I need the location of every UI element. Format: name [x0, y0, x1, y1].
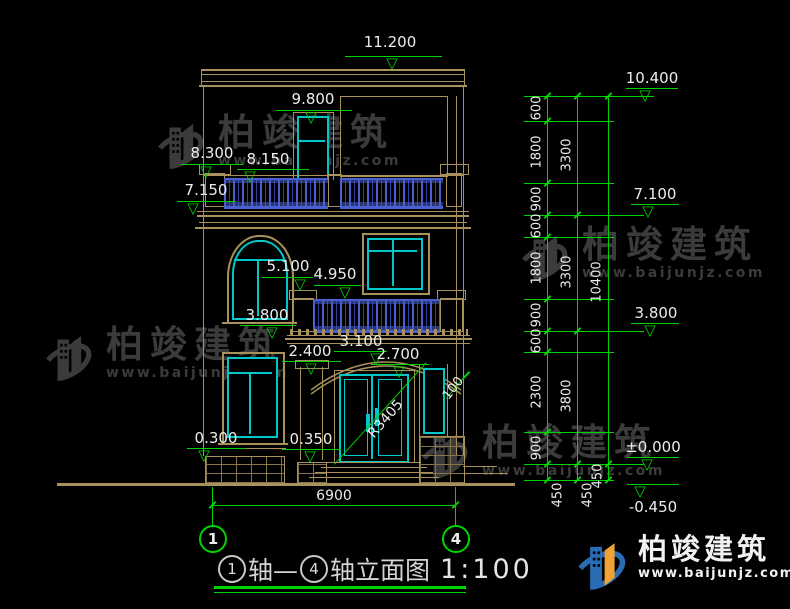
- company-logo: 柏竣建筑 www.baijunjz.com: [572, 534, 790, 596]
- title-underline: [214, 592, 466, 593]
- dim-chain-line: [608, 96, 609, 480]
- door-center-stile: [371, 376, 373, 459]
- wall-left-edge: [203, 87, 204, 456]
- elevation-label: 10.400: [626, 71, 679, 86]
- dim-segment-label: 3800: [561, 379, 574, 412]
- entry-step: [321, 467, 427, 468]
- balcony-pier: [440, 298, 463, 332]
- watermark-url: www.baijunjz.com: [582, 265, 765, 281]
- window-mullion: [392, 240, 394, 286]
- dim-chain-line: [577, 96, 578, 480]
- elevation-label: 9.800: [292, 92, 335, 107]
- cornice-line: [195, 227, 471, 229]
- entry-step: [309, 477, 439, 478]
- window-glass: [227, 357, 278, 438]
- stone-base: [205, 456, 285, 484]
- cornice-line: [199, 222, 467, 223]
- logo-url: www.baijunjz.com: [638, 566, 790, 581]
- elevation-marker-arrow: [302, 449, 318, 464]
- elevation-label: 3.800: [246, 308, 289, 323]
- bulkhead-door-rail: [299, 140, 325, 142]
- roof-parapet-line: [201, 74, 465, 75]
- elevation-marker-arrow: [185, 201, 201, 216]
- elevation-marker-arrow: [391, 364, 407, 379]
- elevation-label: 0.300: [195, 431, 238, 446]
- door-frame: [414, 370, 415, 463]
- terrace-pier: [446, 173, 462, 207]
- title-text: 轴立面图: [330, 551, 430, 587]
- roof-parapet-bottom: [199, 85, 467, 87]
- axis-number: 4: [309, 560, 319, 578]
- elevation-marker-arrow: [264, 325, 280, 340]
- dim-extension-line: [524, 121, 614, 122]
- wall-right-pilaster: [456, 96, 457, 456]
- elevation-label: -0.450: [629, 500, 677, 515]
- dim-segment-label: 1800: [531, 251, 544, 284]
- dim-chain-line: [547, 96, 548, 480]
- elevation-marker-arrow: [337, 285, 353, 300]
- title-axis-circle: 1: [218, 555, 246, 583]
- entry-step: [315, 472, 433, 473]
- width-dim-label: 6900: [316, 489, 352, 503]
- wall-right-edge: [463, 87, 464, 456]
- bulkhead-door-frame: [333, 112, 334, 180]
- stone-base: [297, 462, 327, 484]
- title-text: 轴—: [248, 551, 298, 587]
- dim-segment-label: 900: [531, 187, 544, 212]
- ground-line: [57, 483, 515, 486]
- roof-parapet-end: [464, 69, 465, 87]
- elevation-label: 7.150: [185, 183, 228, 198]
- dim-segment-label: 450: [592, 464, 605, 489]
- dim-segment-label: 10400: [591, 261, 604, 302]
- dim-segment-label: 900: [531, 303, 544, 328]
- elevation-label: 2.700: [377, 347, 420, 362]
- sidelight-frame: [419, 364, 420, 436]
- dim-segment-label: 2300: [531, 375, 544, 408]
- window-glass: [367, 238, 423, 290]
- dim-extension-line: [524, 183, 614, 184]
- balcony-balustrade: [313, 299, 440, 333]
- dim-extension-line: [524, 464, 644, 465]
- baijun-logo-icon: [40, 326, 96, 388]
- sidelight-glass: [423, 368, 445, 434]
- cornice-line: [197, 215, 469, 217]
- dim-segment-label: 600: [531, 329, 544, 354]
- balcony-pier: [292, 298, 314, 332]
- elevation-marker-arrow: [640, 204, 656, 219]
- drawing-title: 1 轴— 4 轴立面图 1:100: [216, 551, 533, 587]
- terrace-balustrade: [340, 178, 443, 209]
- elevation-label: 11.200: [364, 35, 417, 50]
- dim-segment-label: 600: [531, 96, 544, 121]
- elevation-marker-arrow: [196, 448, 212, 463]
- elevation-label: 4.950: [314, 267, 357, 282]
- side-step: [463, 466, 497, 467]
- terrace-balustrade: [224, 178, 328, 209]
- stair-bulkhead-wall: [340, 96, 448, 177]
- elevation-label: 0.350: [290, 432, 333, 447]
- dim-segment-label: 600: [531, 214, 544, 239]
- title-scale: 1:100: [440, 554, 533, 585]
- dim-segment-label: 3300: [561, 138, 574, 171]
- roof-parapet-top: [201, 69, 465, 71]
- roof-parapet-line: [201, 81, 465, 82]
- elevation-label: ±0.000: [625, 440, 681, 455]
- axis-number: 4: [451, 530, 461, 548]
- axis-number: 1: [208, 530, 218, 548]
- door-leaf-panel: [344, 379, 368, 456]
- baijun-logo-icon: [572, 534, 630, 596]
- roof-parapet-end: [201, 69, 202, 87]
- cornice-line: [197, 211, 469, 212]
- elevation-marker-arrow: [303, 361, 319, 376]
- title-axis-circle: 4: [300, 555, 328, 583]
- dim-line: [212, 505, 455, 506]
- elevation-marker-arrow: [384, 56, 400, 71]
- elevation-label: 8.300: [191, 146, 234, 161]
- elevation-label: 7.100: [634, 187, 677, 202]
- window-mullion: [369, 250, 417, 252]
- watermark: 柏竣建筑 www.baijunjz.com: [516, 226, 765, 288]
- elevation-label: 2.400: [289, 344, 332, 359]
- dim-segment-label: 3300: [561, 255, 574, 288]
- elevation-marker-arrow: [632, 484, 648, 499]
- elevation-marker-arrow: [242, 169, 258, 184]
- dim-extension-line: [524, 432, 614, 433]
- dim-segment-label: 900: [531, 436, 544, 461]
- elevation-label: 3.800: [635, 306, 678, 321]
- elevation-marker-arrow: [198, 164, 214, 179]
- elevation-label: 5.100: [267, 259, 310, 274]
- elevation-drawing-canvas: 柏竣建筑 www.baijunjz.com 柏竣建筑 www.baijunjz.…: [0, 0, 790, 609]
- axis-number: 1: [227, 560, 237, 578]
- side-step: [463, 473, 507, 474]
- watermark-brand: 柏竣建筑: [582, 226, 765, 265]
- elevation-label: 8.150: [247, 152, 290, 167]
- entry-step: [327, 462, 421, 463]
- elevation-marker-arrow: [303, 110, 319, 125]
- dim-segment-label: 450: [552, 483, 565, 508]
- axis-bubble: 1: [199, 525, 227, 553]
- elevation-marker-arrow: [642, 323, 658, 338]
- elevation-marker-arrow: [292, 277, 308, 292]
- title-underline: [214, 586, 466, 589]
- logo-brand: 柏竣建筑: [638, 534, 790, 566]
- dim-segment-label: 1800: [531, 135, 544, 168]
- axis-bubble: 4: [442, 525, 470, 553]
- window-mullion: [249, 372, 251, 434]
